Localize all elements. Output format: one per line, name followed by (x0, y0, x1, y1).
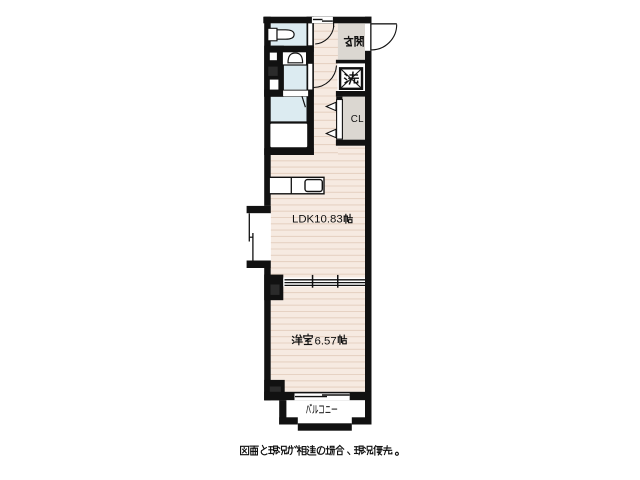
svg-text:LDK10.83: LDK10.83 (292, 213, 343, 225)
svg-text:6.57: 6.57 (315, 335, 337, 347)
svg-text:CL: CL (351, 114, 364, 125)
